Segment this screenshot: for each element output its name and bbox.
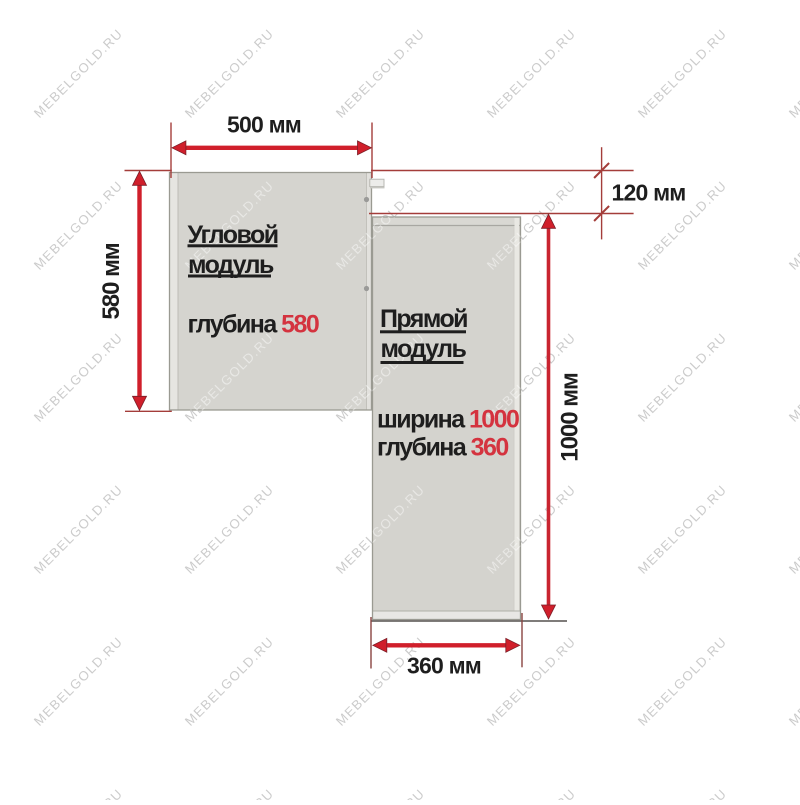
svg-text:1000 мм: 1000 мм [556,373,583,462]
svg-text:модуль: модуль [381,335,467,363]
svg-text:360 мм: 360 мм [407,653,481,679]
svg-text:120 мм: 120 мм [612,180,686,206]
svg-text:глубина 360: глубина 360 [377,434,508,462]
svg-text:500 мм: 500 мм [227,112,301,138]
svg-text:580 мм: 580 мм [98,243,125,319]
svg-text:глубина 580: глубина 580 [188,311,319,339]
svg-text:Прямой: Прямой [380,305,467,333]
svg-text:ширина 1000: ширина 1000 [377,406,519,434]
